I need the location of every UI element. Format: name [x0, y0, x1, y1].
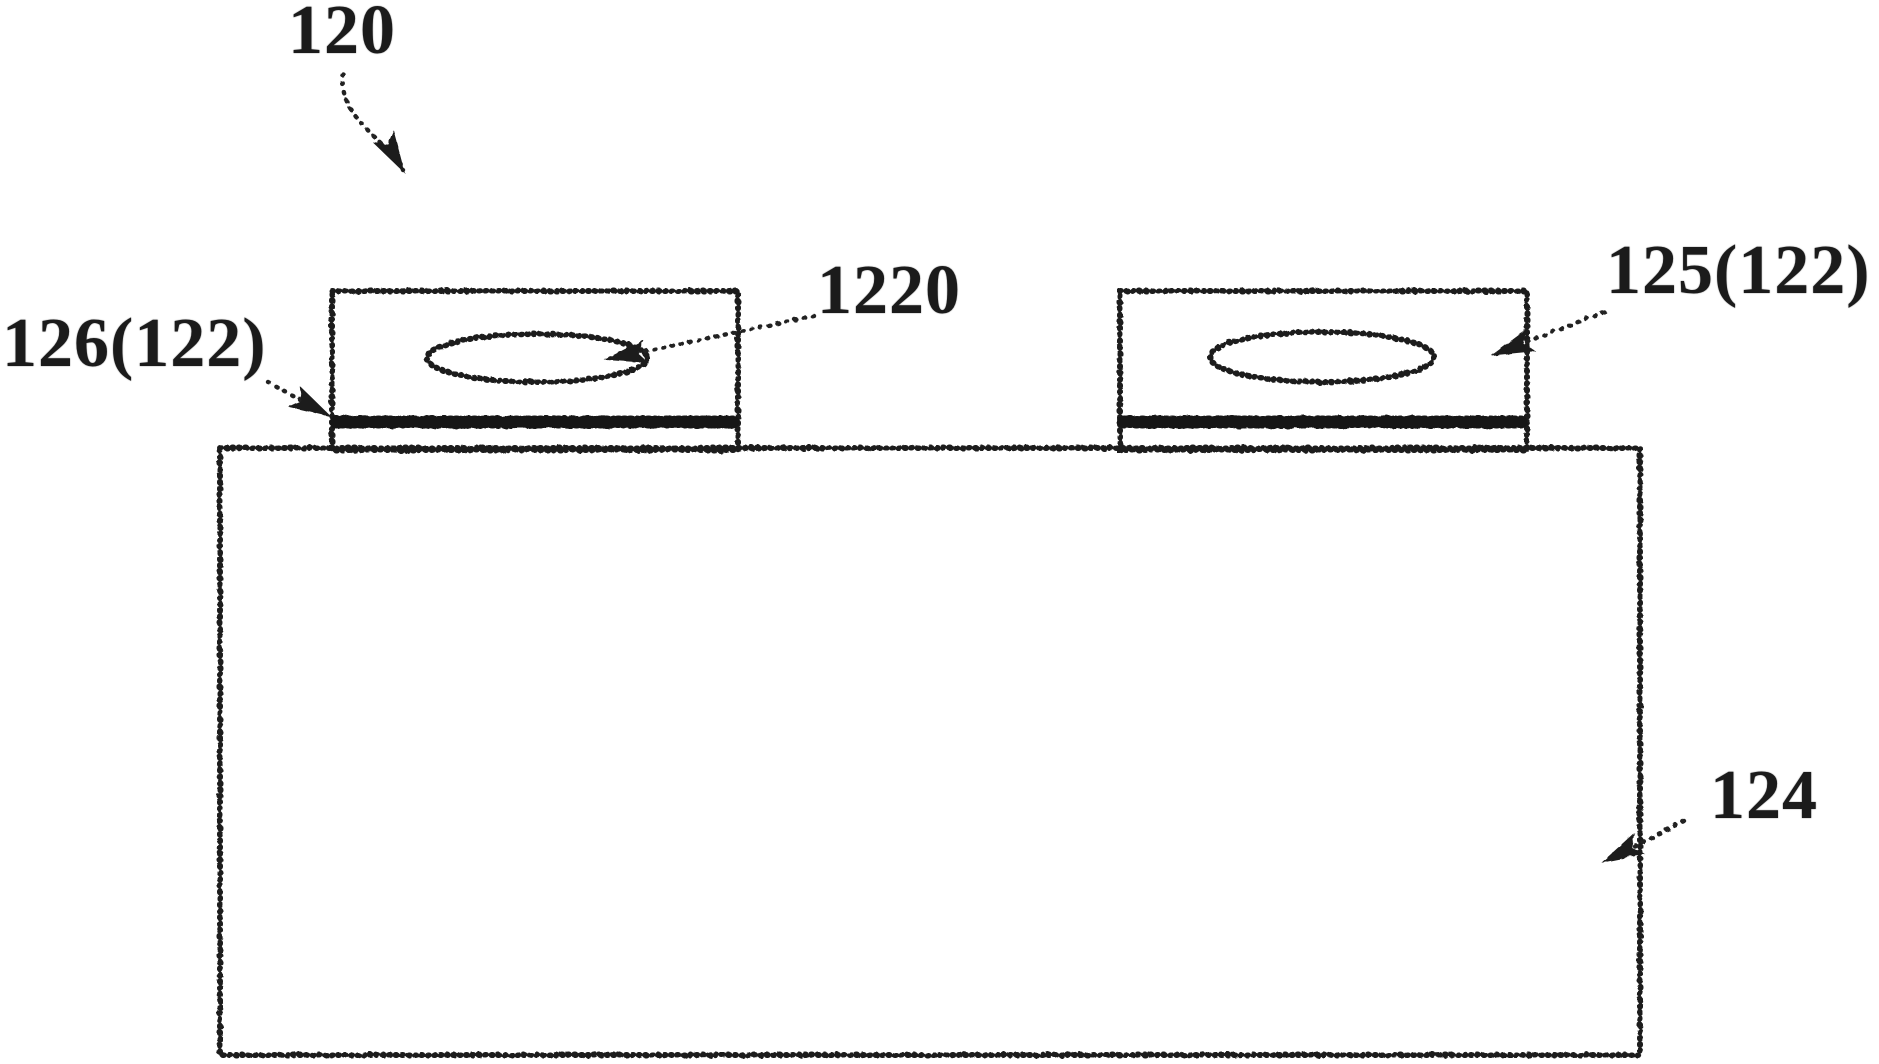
- leader-line-terminal-hole: [608, 316, 814, 359]
- leader-line-case: [1605, 821, 1684, 861]
- label-126-122: 126(122): [2, 309, 267, 379]
- patent-figure: 120 126(122) 1220 125(122) 124: [0, 0, 1879, 1064]
- battery-case-outline: [220, 448, 1640, 1055]
- label-124: 124: [1710, 761, 1818, 831]
- label-125-122: 125(122): [1606, 236, 1871, 306]
- terminal-left-hole-ellipse: [427, 334, 647, 382]
- leader-line-right-terminal: [1495, 312, 1604, 354]
- label-1220: 1220: [817, 256, 961, 326]
- leader-arrow-assembly: [343, 74, 403, 170]
- label-120: 120: [288, 0, 396, 66]
- leader-line-left-terminal: [268, 382, 328, 415]
- terminal-right-hole-ellipse: [1210, 332, 1434, 382]
- diagram-canvas: [0, 0, 1879, 1064]
